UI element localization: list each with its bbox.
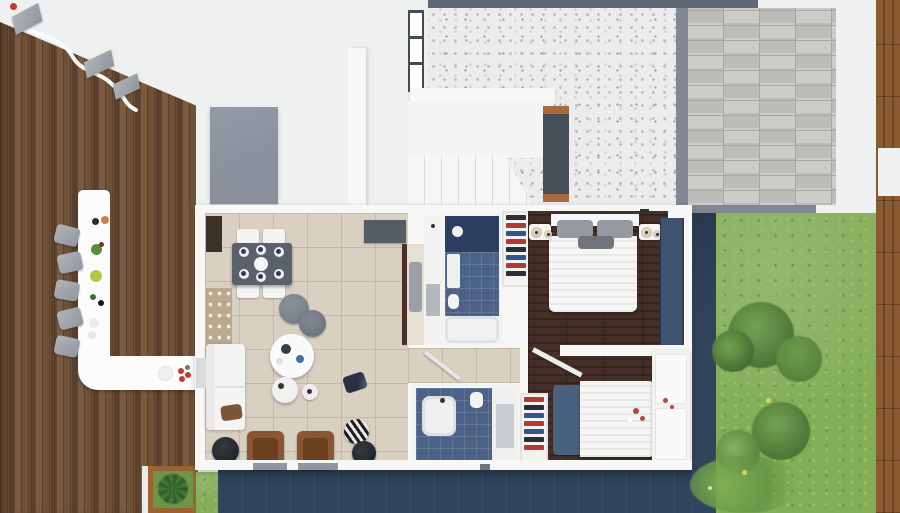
flower-dot-3 [708, 486, 712, 490]
bathroom1-sink [452, 226, 463, 237]
dining-chair-3 [237, 283, 259, 298]
bathroom1-toilet [448, 294, 459, 309]
wall-gadget [640, 209, 649, 214]
patio-divider-wall [676, 8, 688, 205]
tomato-1 [178, 368, 184, 374]
center-platter [254, 257, 268, 271]
wall-shelf-unit [206, 288, 232, 350]
dining-chair-2 [263, 229, 285, 244]
ball-lamp-right [641, 227, 652, 238]
bed1-throw-pillow [578, 236, 614, 249]
clothes-item [506, 247, 526, 252]
red-deck-object [10, 3, 17, 10]
floral-throw-dot-2 [640, 416, 645, 421]
flower-dot-1 [766, 398, 771, 403]
kitchen-cooktop [364, 220, 406, 243]
orange-fruit [101, 216, 109, 224]
coffee-cup [92, 218, 99, 225]
canopy-roof-panel [210, 107, 278, 204]
upper-window [408, 10, 424, 92]
coffee-table-large [270, 334, 314, 378]
bar-plate-lower [158, 366, 173, 381]
entry-bench [543, 112, 569, 196]
kitchen-vanity [424, 215, 442, 345]
bar-plant-berry [99, 242, 104, 247]
white-chaise-cushion-top [655, 354, 687, 404]
coffee-table-bowl [281, 344, 291, 354]
clothes-item [524, 397, 544, 402]
clothes-item [524, 429, 544, 434]
clothes-item [506, 255, 526, 260]
master-wardrobe-navy [660, 218, 684, 345]
clothes-item [506, 263, 526, 268]
clothes-item [506, 231, 526, 236]
dining-chair-4 [263, 283, 285, 298]
clothes-item [506, 239, 526, 244]
sofa-pillow-brown [220, 404, 243, 422]
grass-patch-left [196, 472, 218, 513]
closet1-clothes [502, 211, 530, 280]
tomato-leaf [185, 365, 190, 370]
clothes-item [506, 271, 526, 276]
plate-3 [274, 247, 284, 257]
garden-bush-large-blob-1 [712, 330, 754, 372]
coffee-table-small-item [278, 383, 284, 389]
ball-lamp-left [531, 227, 542, 238]
chaise-flower-dot-1 [663, 398, 668, 403]
floral-throw-dot-3 [628, 418, 632, 422]
tomato-3 [179, 376, 185, 382]
coffee-table-blue-item [296, 355, 304, 363]
kitchen-floor-mat [426, 284, 440, 316]
boardwalk-notch [878, 148, 900, 196]
bathroom2-bathtub [422, 396, 456, 436]
tomato-2 [185, 372, 191, 378]
white-plate-1 [89, 318, 99, 328]
garden-plants-bottom [690, 456, 800, 513]
terrace-bottom [218, 470, 692, 513]
dining-table [232, 243, 292, 285]
sofa-backrest [206, 344, 215, 430]
kitchen-sink [409, 262, 422, 312]
plate-1 [239, 247, 249, 257]
glass-door-track-2 [298, 463, 338, 470]
garden-bush-large-blob-2 [776, 336, 822, 382]
sofa-cushion-line [215, 386, 245, 388]
side-table-round-item [307, 389, 312, 394]
flower-dot-2 [742, 470, 747, 475]
lime-plate [90, 270, 102, 282]
glass-door-track-1 [253, 463, 287, 470]
white-plate-2 [88, 331, 96, 339]
closet1 [502, 211, 530, 287]
dining-chair-1 [237, 229, 259, 244]
stair-landing [408, 102, 554, 158]
plate-5 [256, 272, 266, 282]
bathroom1-bathtub [445, 316, 499, 343]
floorplan-scene [0, 0, 900, 513]
bed2-headboard-navy [553, 385, 583, 455]
palm-plant [158, 474, 188, 504]
clothes-item [524, 445, 544, 450]
garden-bush-small [752, 402, 810, 460]
plate-2 [256, 245, 266, 255]
bathroom2-faucet [440, 398, 445, 403]
kitchen-faucet [431, 224, 435, 228]
clothes-item [524, 437, 544, 442]
paver-patio [688, 8, 836, 205]
green-bowl [90, 294, 96, 300]
ball-lamp-left-2 [544, 230, 552, 238]
plate-4 [239, 269, 249, 279]
side-boardwalk [876, 0, 900, 513]
floral-throw-dot-1 [633, 408, 639, 414]
closet2-clothes [520, 393, 548, 454]
white-chaise-cushion-bottom [655, 408, 687, 460]
bathroom2-partition-door [496, 404, 514, 448]
bar-stool-3 [54, 279, 81, 302]
clothes-item [506, 215, 526, 220]
plate-6 [274, 269, 284, 279]
glass-door-track-3 [480, 464, 490, 470]
tv-cabinet [206, 216, 222, 252]
entry-bench-cap-top [543, 106, 569, 114]
clothes-item [524, 413, 544, 418]
entry-bench-cap-bottom [543, 194, 569, 202]
coffee-table-small [272, 377, 298, 403]
coffee-table-cup [276, 358, 283, 365]
upper-wall-band [428, 0, 758, 8]
clothes-item [506, 223, 526, 228]
hall-wall-vertical [348, 48, 366, 208]
clothes-item [524, 405, 544, 410]
bathroom2-toilet [470, 392, 483, 408]
chaise-flower-dot-2 [670, 405, 674, 409]
bathroom1-shower [447, 254, 460, 288]
black-bowl [98, 300, 104, 306]
bar-door [196, 358, 206, 388]
clothes-item [524, 421, 544, 426]
closet2 [520, 393, 548, 467]
floor-pouf-2 [299, 310, 326, 337]
